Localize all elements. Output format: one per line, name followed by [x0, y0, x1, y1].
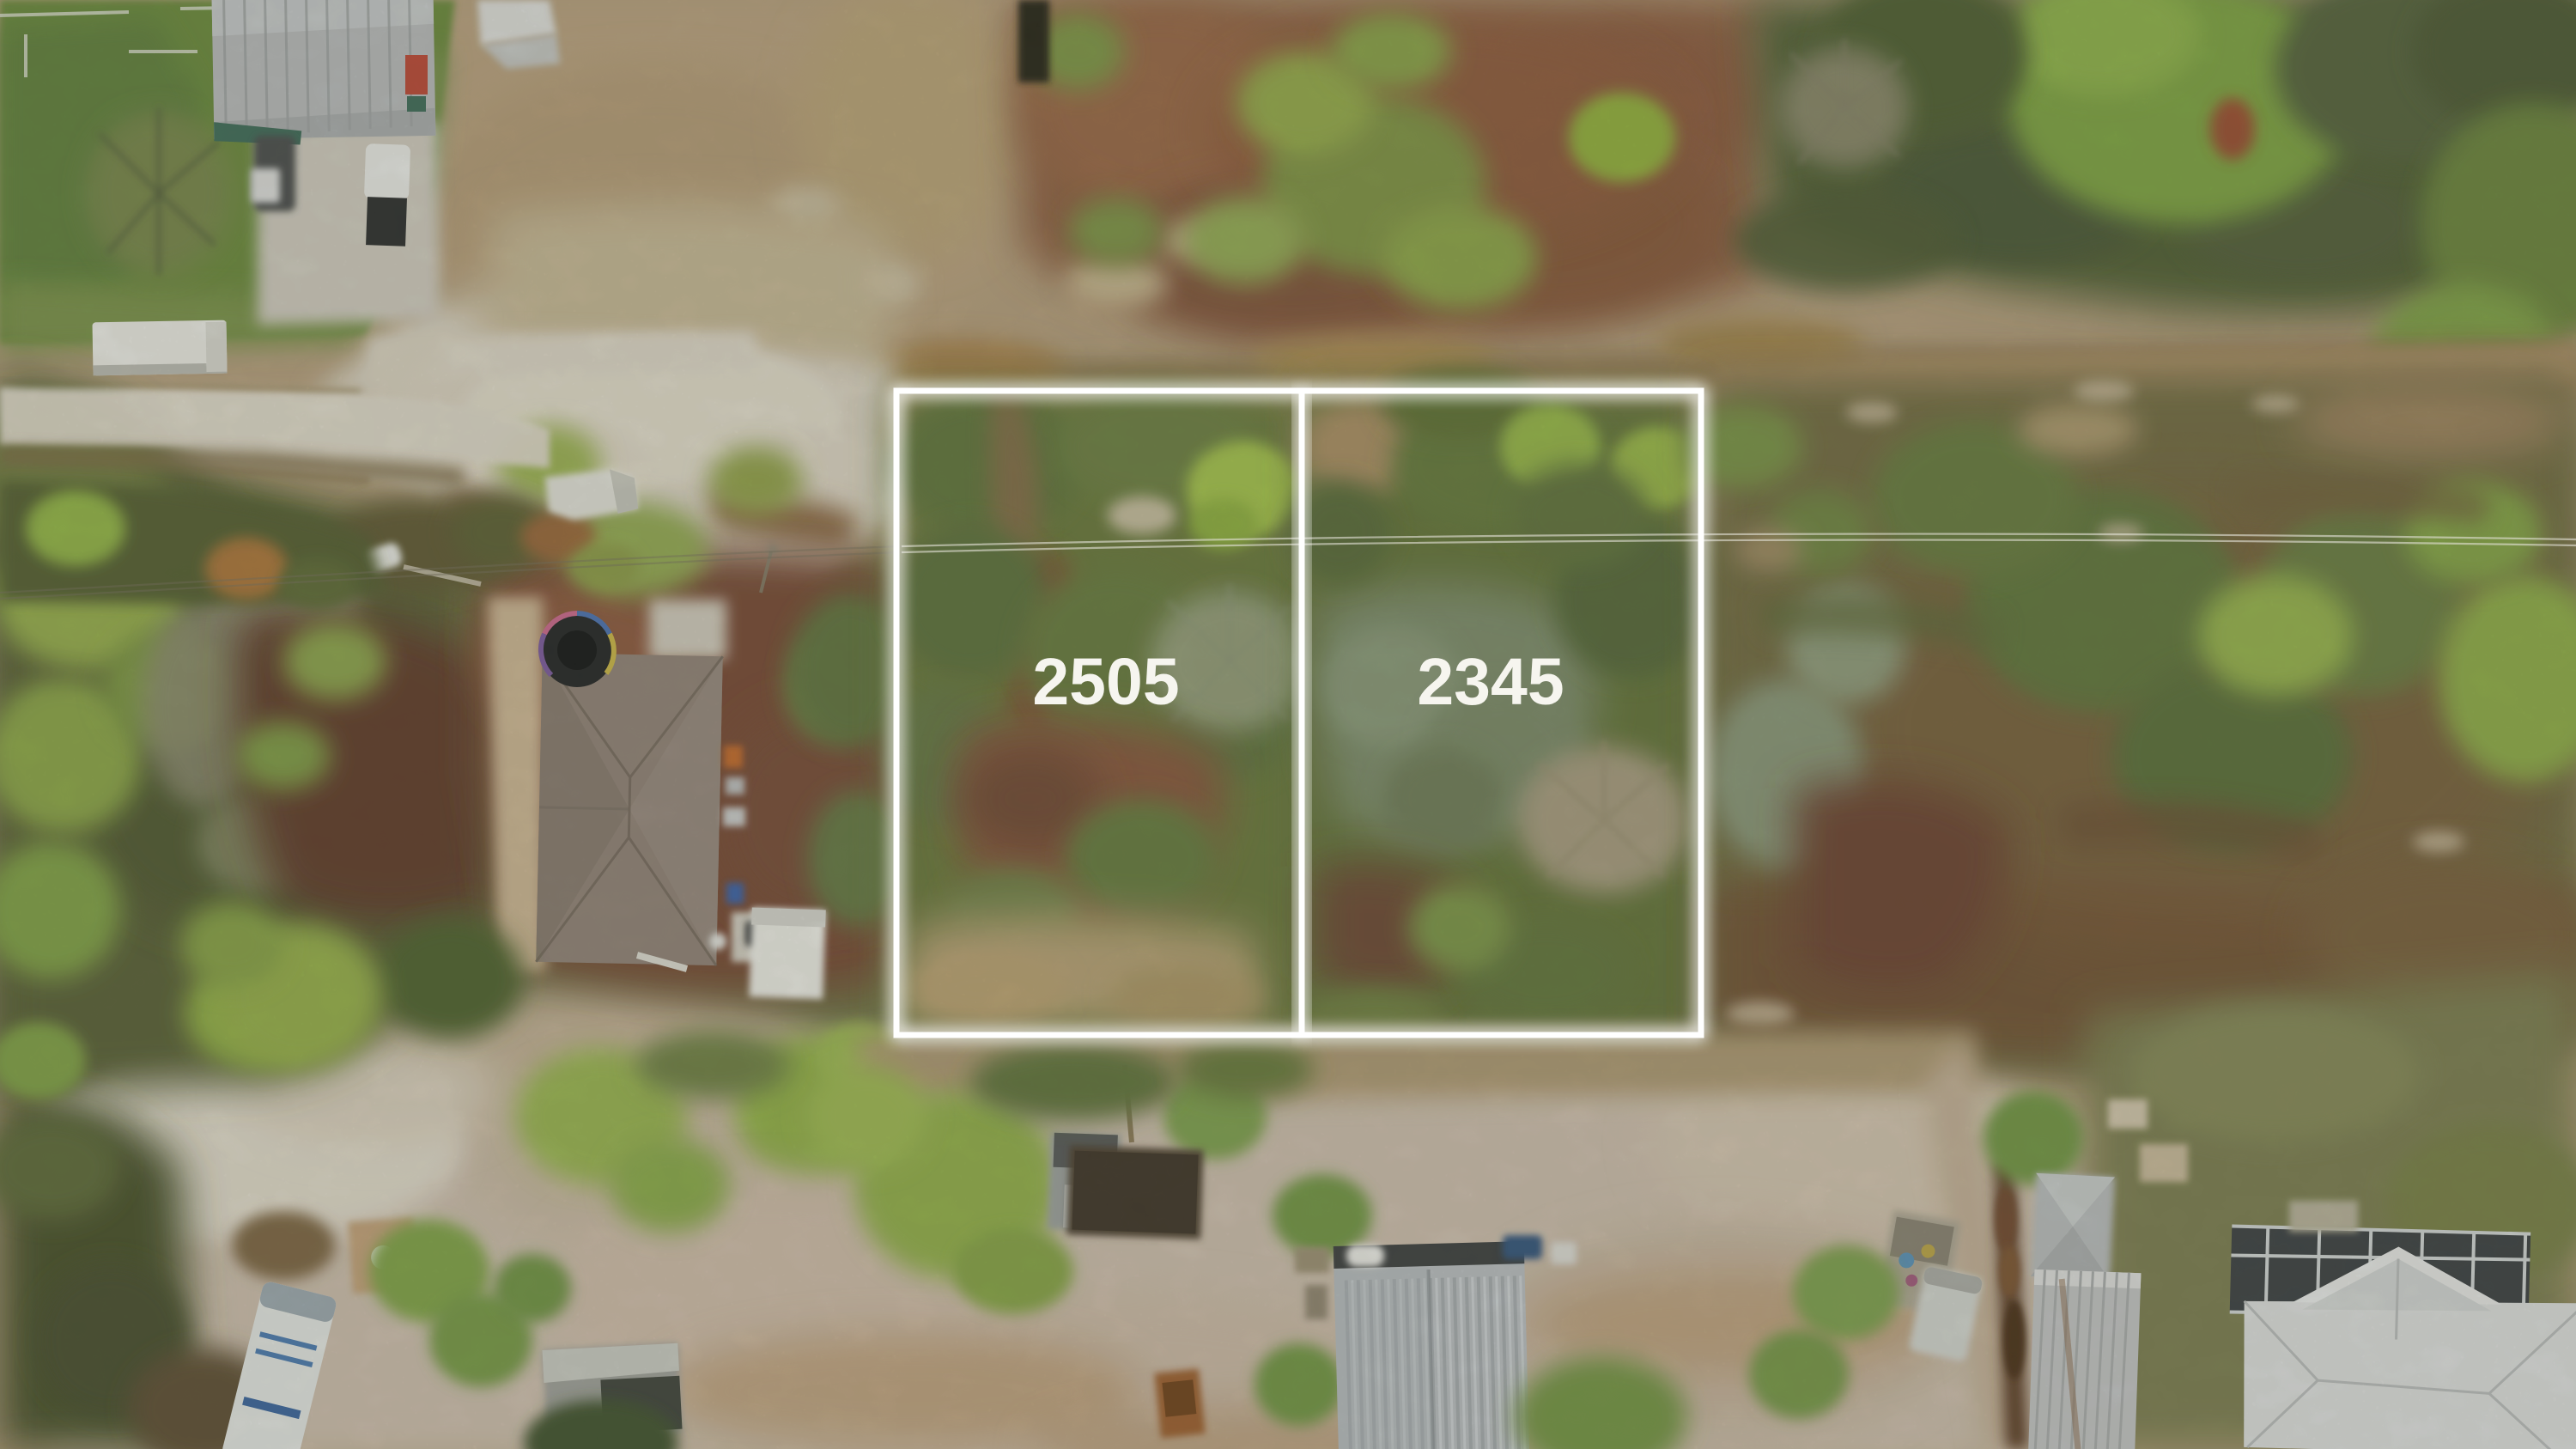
svg-text:2505: 2505 — [1032, 645, 1179, 719]
svg-text:2345: 2345 — [1417, 645, 1564, 719]
